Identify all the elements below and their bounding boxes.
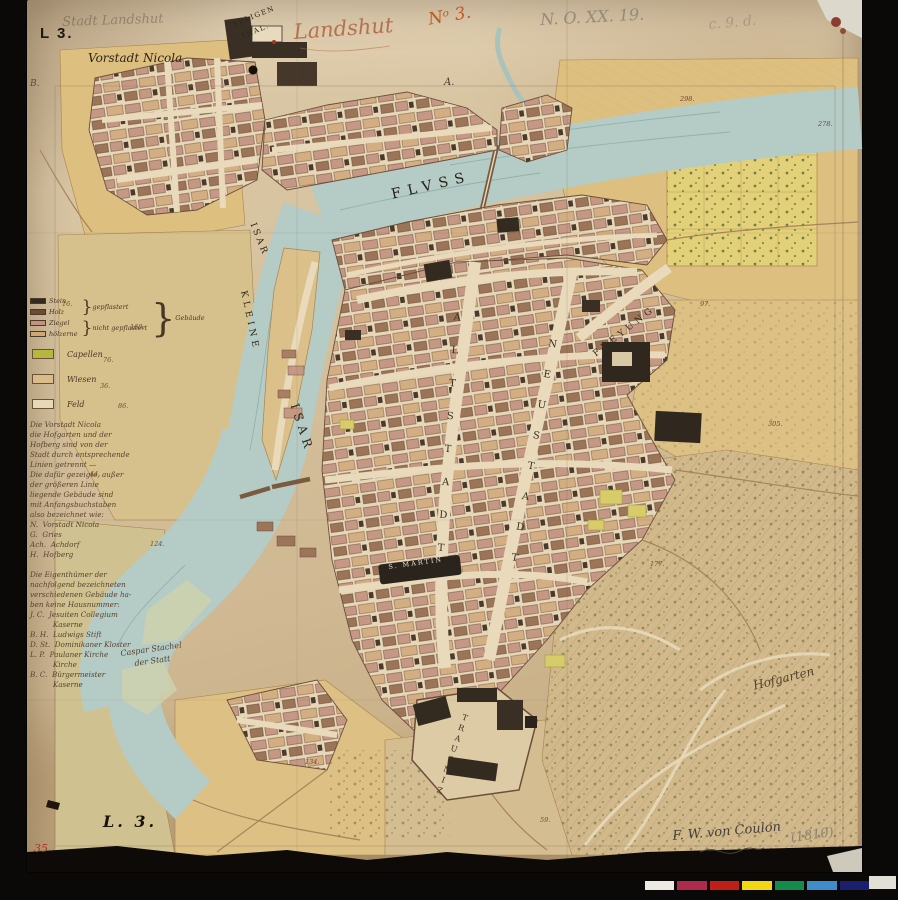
color-bar-segment — [840, 881, 869, 890]
dominican-church — [654, 411, 702, 443]
color-bar-segment — [775, 881, 804, 890]
color-bar-segment — [677, 881, 706, 890]
dark-building — [582, 300, 600, 312]
color-bar-segment — [645, 881, 674, 890]
hl-geist-church — [496, 217, 519, 233]
map-artwork — [0, 0, 898, 900]
color-bar-segment — [710, 881, 739, 890]
color-calibration-bar — [645, 881, 869, 890]
dark-building — [345, 330, 361, 340]
jesuit-college — [602, 342, 650, 382]
color-bar-segment — [742, 881, 771, 890]
color-bar-segment — [807, 881, 836, 890]
scale-white-tab — [869, 876, 896, 889]
map-scan-stage: L 3. Stadt Landshut Landshut Nᵒ 3. N. O.… — [0, 0, 898, 900]
